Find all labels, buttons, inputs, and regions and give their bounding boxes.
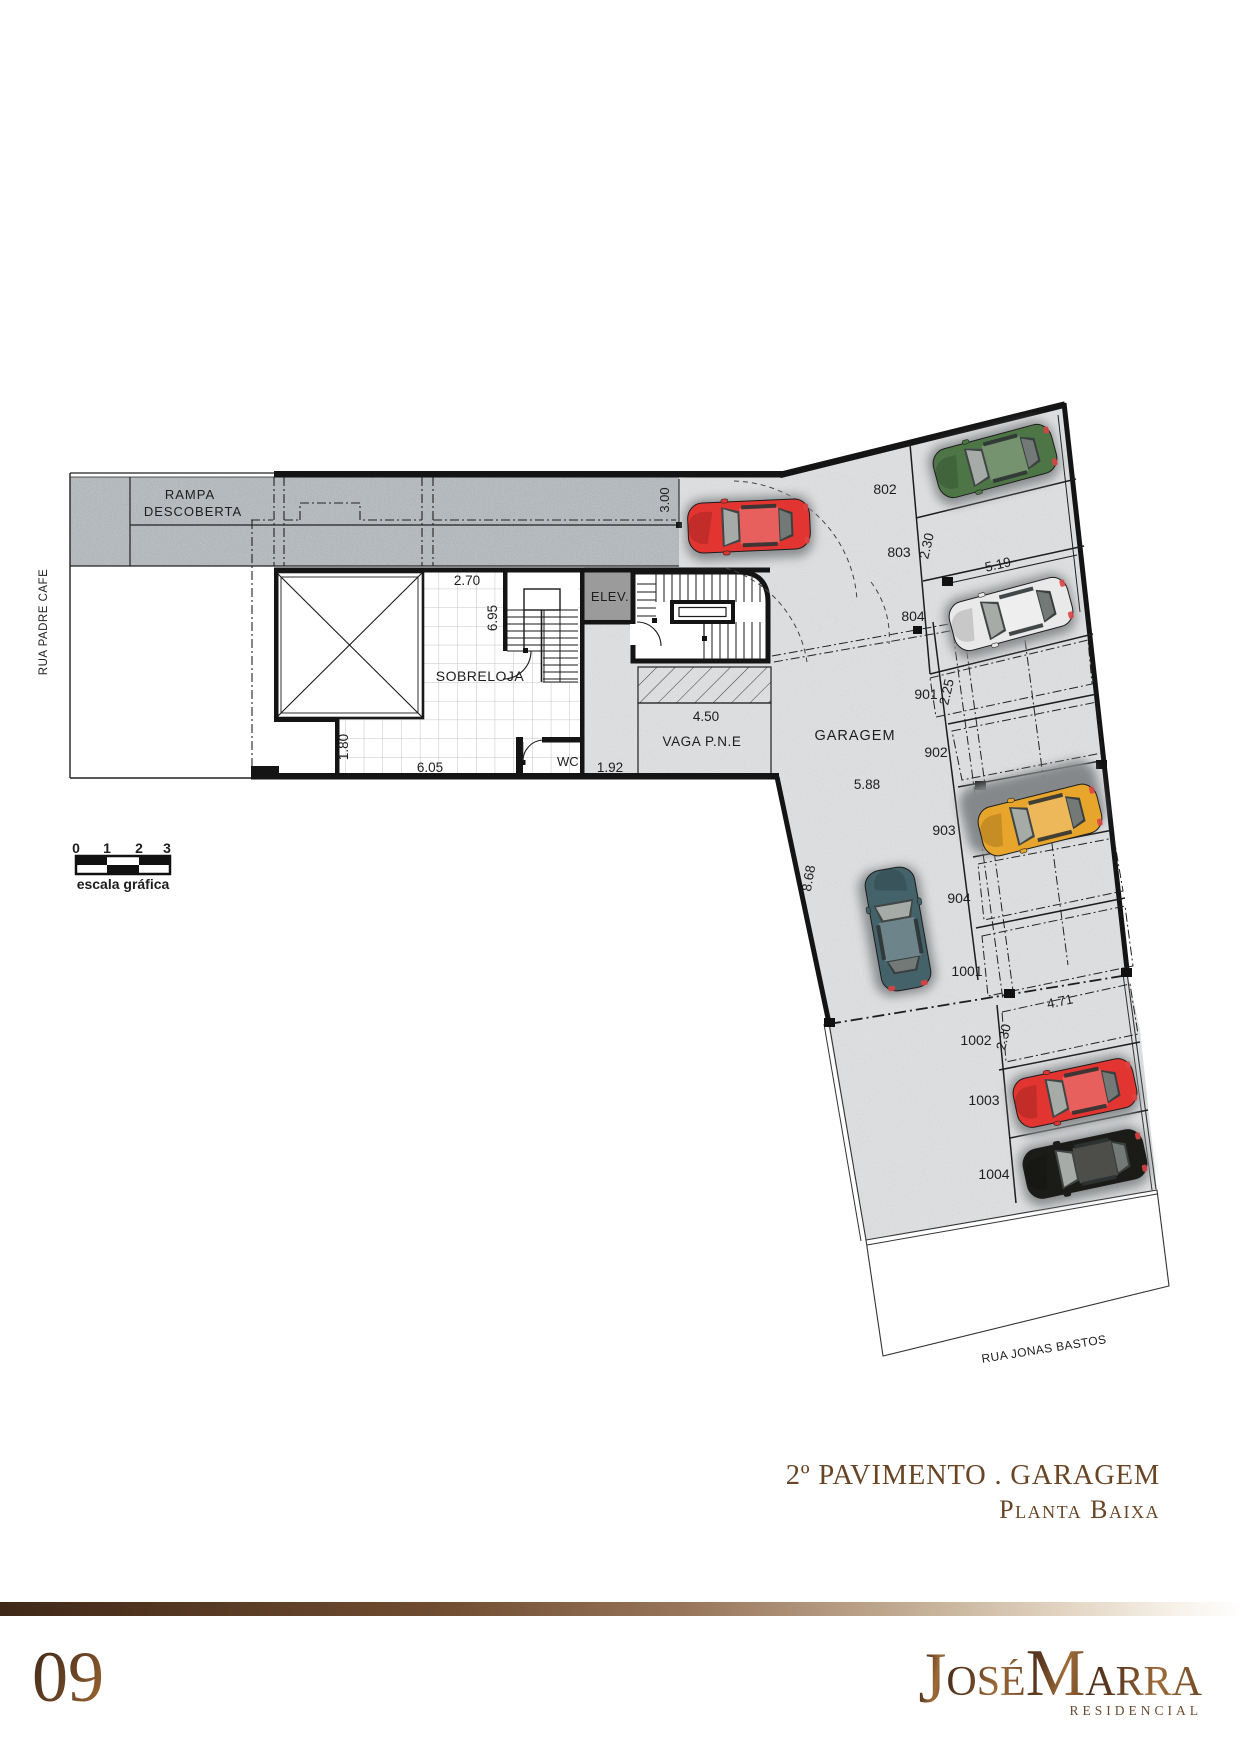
svg-text:1002: 1002 <box>960 1032 991 1048</box>
svg-text:VAGA P.N.E: VAGA P.N.E <box>662 734 741 749</box>
svg-text:1: 1 <box>103 840 111 856</box>
svg-text:902: 902 <box>924 744 948 760</box>
svg-text:802: 802 <box>873 481 897 497</box>
svg-text:ELEV.: ELEV. <box>591 589 629 604</box>
svg-text:3: 3 <box>163 840 171 856</box>
svg-text:RUA PADRE CAFE: RUA PADRE CAFE <box>38 569 50 675</box>
svg-text:901: 901 <box>914 686 938 702</box>
svg-text:GARAGEM: GARAGEM <box>814 728 895 744</box>
svg-text:904: 904 <box>947 890 971 906</box>
svg-text:1001: 1001 <box>951 963 982 979</box>
svg-text:903: 903 <box>932 822 956 838</box>
svg-text:RAMPA: RAMPA <box>165 487 215 502</box>
svg-text:2.70: 2.70 <box>454 573 480 588</box>
svg-text:SOBRELOJA: SOBRELOJA <box>436 668 525 684</box>
svg-text:WC: WC <box>557 754 579 769</box>
svg-text:3.00: 3.00 <box>657 487 672 512</box>
svg-text:4.50: 4.50 <box>693 709 719 724</box>
svg-text:5.88: 5.88 <box>854 777 880 792</box>
svg-text:0: 0 <box>72 840 80 856</box>
svg-text:DESCOBERTA: DESCOBERTA <box>144 504 242 519</box>
svg-text:1004: 1004 <box>978 1166 1009 1182</box>
svg-text:804: 804 <box>901 608 925 624</box>
svg-text:1003: 1003 <box>968 1092 999 1108</box>
svg-text:6.95: 6.95 <box>485 605 500 631</box>
svg-text:2: 2 <box>135 840 143 856</box>
svg-text:1.92: 1.92 <box>597 760 623 775</box>
svg-text:RUA JONAS BASTOS: RUA JONAS BASTOS <box>981 1332 1108 1366</box>
svg-text:6.05: 6.05 <box>417 760 443 775</box>
svg-text:1.80: 1.80 <box>336 734 351 760</box>
svg-text:803: 803 <box>887 544 911 560</box>
svg-text:escala gráfica: escala gráfica <box>77 876 170 892</box>
